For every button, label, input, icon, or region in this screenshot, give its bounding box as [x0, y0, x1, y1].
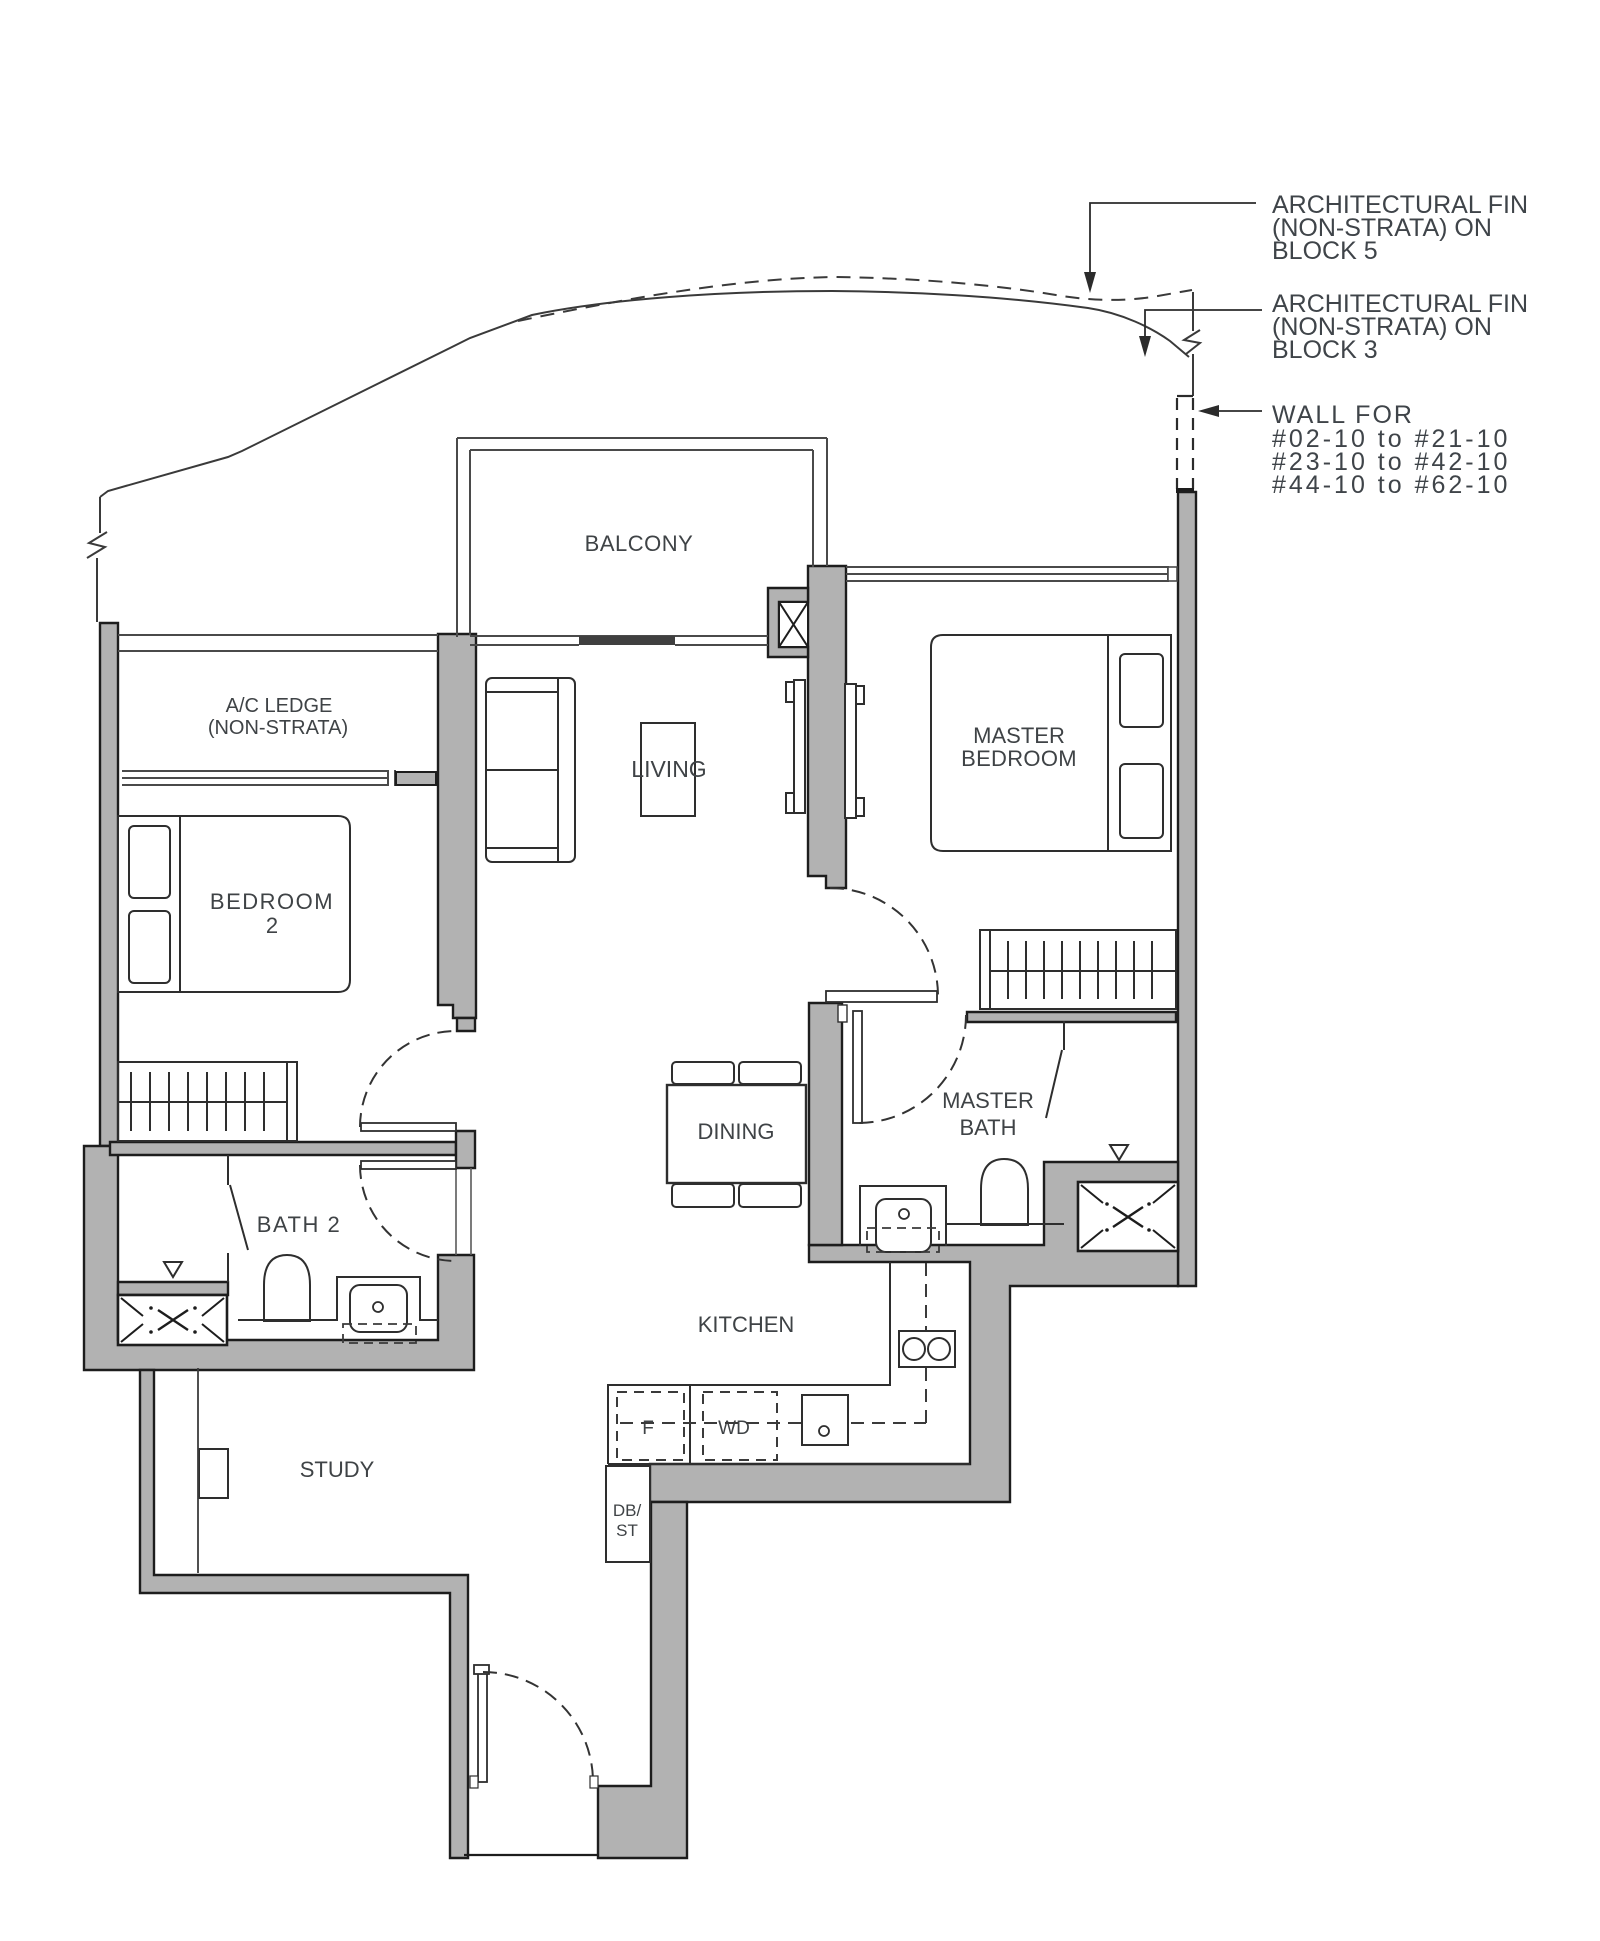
- svg-text:BLOCK 3: BLOCK 3: [1272, 336, 1378, 364]
- svg-text:#44-10 to #62-10: #44-10 to #62-10: [1272, 471, 1510, 499]
- svg-text:BEDROOM: BEDROOM: [210, 889, 334, 914]
- svg-text:DB/: DB/: [613, 1501, 642, 1520]
- svg-text:BEDROOM: BEDROOM: [961, 746, 1077, 771]
- svg-text:ST: ST: [616, 1521, 638, 1540]
- svg-text:MASTER: MASTER: [942, 1088, 1034, 1113]
- svg-text:BALCONY: BALCONY: [585, 531, 694, 556]
- svg-text:(NON-STRATA): (NON-STRATA): [208, 717, 348, 739]
- svg-text:WD: WD: [718, 1418, 750, 1439]
- svg-text:STUDY: STUDY: [300, 1457, 375, 1482]
- svg-text:BATH 2: BATH 2: [257, 1212, 341, 1237]
- svg-text:DINING: DINING: [698, 1119, 775, 1144]
- svg-text:F: F: [642, 1418, 654, 1439]
- svg-text:BATH: BATH: [959, 1115, 1016, 1140]
- svg-text:KITCHEN: KITCHEN: [698, 1312, 795, 1337]
- svg-text:MASTER: MASTER: [973, 723, 1065, 748]
- svg-text:2: 2: [266, 913, 278, 938]
- svg-text:A/C LEDGE: A/C LEDGE: [226, 695, 333, 717]
- svg-text:BLOCK 5: BLOCK 5: [1272, 237, 1378, 265]
- svg-text:LIVING: LIVING: [631, 756, 706, 782]
